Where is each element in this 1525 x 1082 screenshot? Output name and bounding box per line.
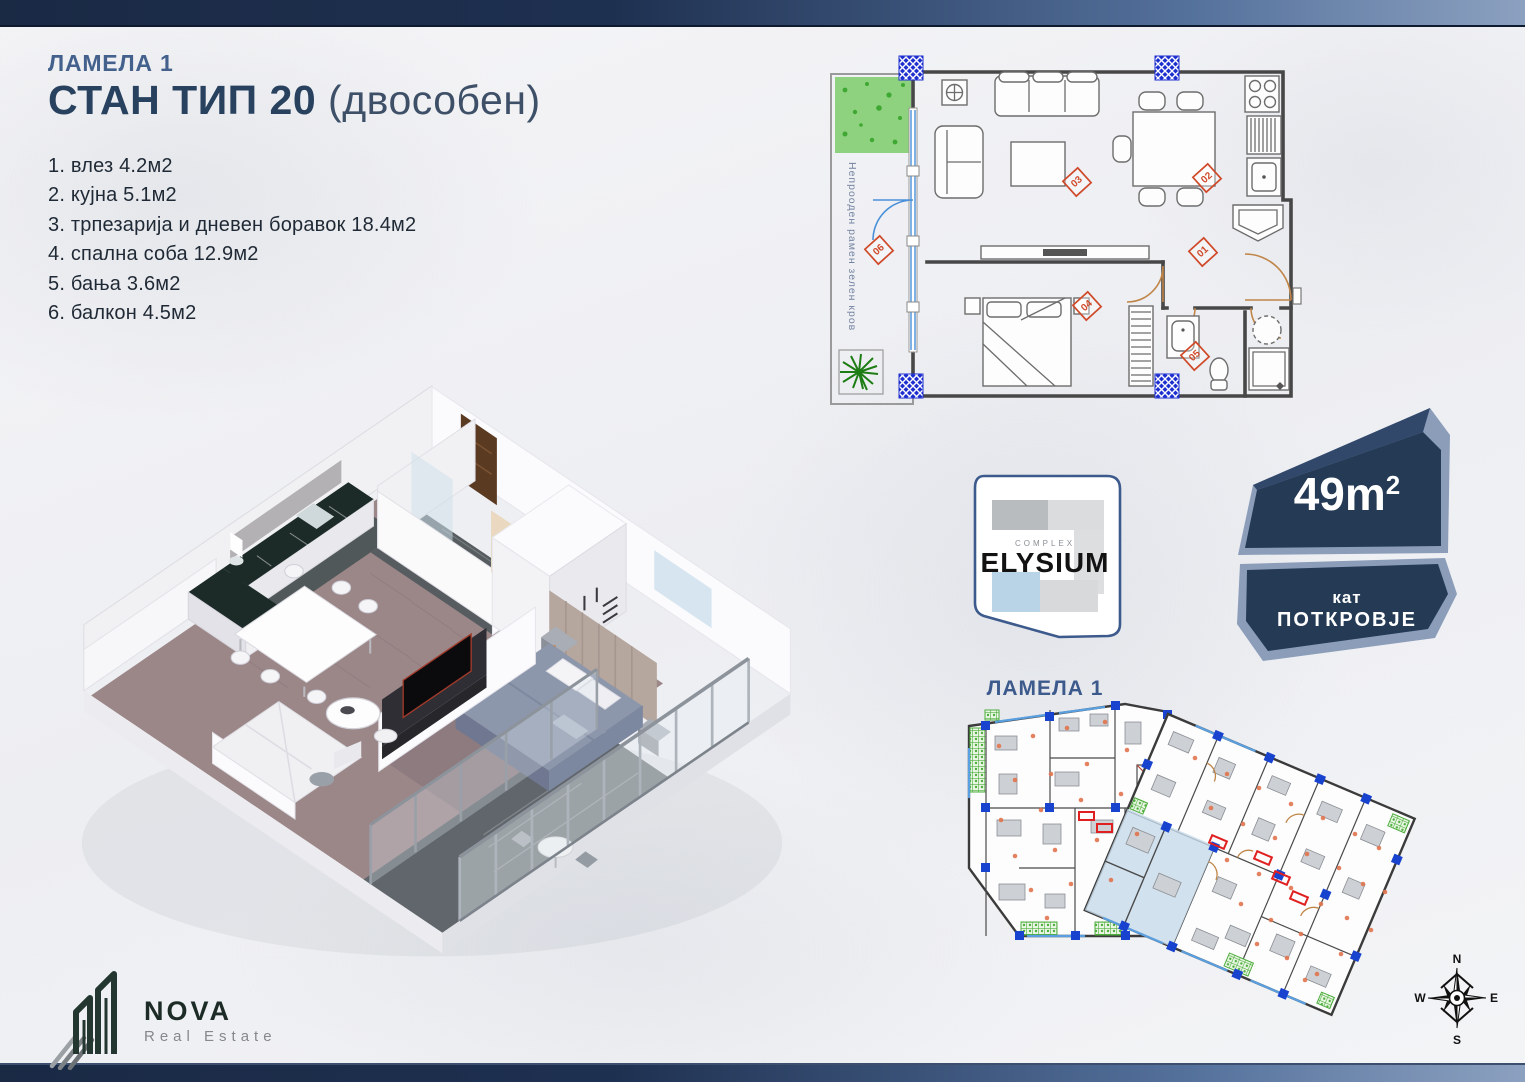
brand-name: NOVA — [144, 998, 277, 1025]
apartment-type: СТАН ТИП 20 — [48, 77, 316, 123]
elysium-logo: COMPLEX ELYSIUM — [952, 472, 1138, 658]
compass-n: N — [1453, 952, 1462, 966]
elysium-name: ELYSIUM — [981, 547, 1110, 578]
compass-s: S — [1453, 1033, 1461, 1047]
lamela-label: ЛАМЕЛА 1 — [48, 50, 541, 77]
apartment-walls — [873, 72, 1291, 396]
room-item: 2. кујна 5.1м2 — [48, 181, 541, 210]
brand-logo: NOVA Real Estate — [46, 958, 277, 1070]
compass-star — [1428, 968, 1486, 1028]
compass-rose: N E S W — [1412, 952, 1502, 1052]
elysium-logo-card: COMPLEX ELYSIUM ЛАМЕЛА 1 — [952, 472, 1138, 704]
floor-plan-2d: Непрооден рамен зелен кров — [815, 50, 1310, 420]
badge-area-text: 49m2 — [1294, 468, 1401, 520]
brand-text: NOVA Real Estate — [144, 998, 277, 1045]
compass-w: W — [1414, 991, 1426, 1005]
plant-icon — [840, 354, 878, 390]
green-roof-label: Непрооден рамен зелен кров — [846, 162, 858, 331]
room-item: 6. балкон 4.5м2 — [48, 299, 541, 328]
room-item: 1. влез 4.2м2 — [48, 152, 541, 181]
room-item: 5. бања 3.6м2 — [48, 270, 541, 299]
brand-tagline: Real Estate — [144, 1028, 277, 1045]
badge-floor-big: ПОТКРОВЈЕ — [1277, 609, 1417, 631]
compass-e: E — [1490, 991, 1498, 1005]
title-block: ЛАМЕЛА 1 СТАН ТИП 20 (двособен) 1. влез … — [48, 50, 541, 328]
room-item: 3. трпезарија и дневен боравок 18.4м2 — [48, 211, 541, 240]
terrace-area: Непрооден рамен зелен кров — [831, 74, 913, 404]
badge-floor-small: кат — [1332, 588, 1361, 607]
room-list: 1. влез 4.2м2 2. кујна 5.1м2 3. трпезари… — [48, 152, 541, 328]
render-3d — [15, 345, 805, 1025]
living-furniture — [935, 72, 1149, 259]
nova-building-icon — [46, 958, 138, 1070]
area-badge: 49m2 кат ПОТКРОВЈЕ — [1235, 398, 1475, 683]
bedroom-furniture — [965, 298, 1153, 386]
room-item: 4. спална соба 12.9м2 — [48, 240, 541, 269]
apartment-subtype: (двособен) — [328, 77, 541, 123]
page-title: СТАН ТИП 20 (двособен) — [48, 79, 541, 122]
slide: { "header": { "lamela": "ЛАМЕЛА 1", "tit… — [0, 0, 1525, 1080]
top-accent-bar — [0, 0, 1525, 27]
building-key-plan — [955, 688, 1440, 1023]
